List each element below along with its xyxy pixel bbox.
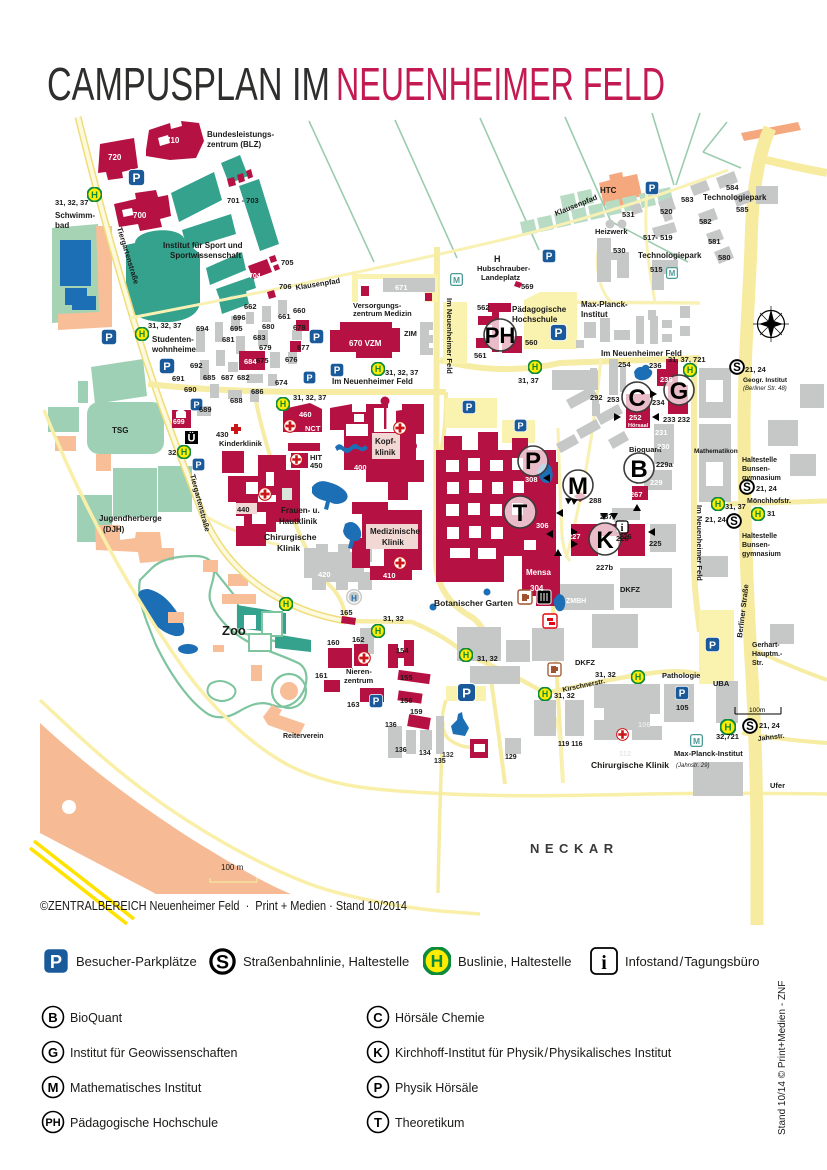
svg-text:Mathematisches Institut: Mathematisches Institut bbox=[70, 1081, 202, 1095]
svg-text:132: 132 bbox=[442, 752, 454, 759]
svg-text:PH: PH bbox=[485, 323, 516, 348]
svg-text:21, 24: 21, 24 bbox=[705, 515, 727, 524]
svg-text:Institut für Sport und: Institut für Sport und bbox=[163, 241, 243, 250]
svg-text:Botanischer Garten: Botanischer Garten bbox=[434, 598, 513, 608]
svg-text:695: 695 bbox=[230, 324, 243, 333]
svg-text:Gerhart-: Gerhart- bbox=[752, 642, 780, 649]
svg-text:21, 24: 21, 24 bbox=[756, 484, 778, 493]
svg-text:682: 682 bbox=[237, 373, 250, 382]
svg-text:T: T bbox=[513, 500, 528, 527]
svg-text:100 m: 100 m bbox=[221, 863, 244, 872]
svg-text:227: 227 bbox=[568, 532, 581, 541]
svg-text:710: 710 bbox=[166, 136, 180, 145]
svg-text:700: 700 bbox=[133, 211, 147, 220]
svg-text:688: 688 bbox=[230, 396, 243, 405]
svg-text:(Jahnstr. 29): (Jahnstr. 29) bbox=[676, 763, 709, 769]
svg-text:32: 32 bbox=[168, 448, 176, 457]
svg-text:400: 400 bbox=[354, 463, 367, 472]
svg-text:UBA: UBA bbox=[713, 679, 730, 688]
svg-text:450: 450 bbox=[310, 461, 323, 470]
svg-text:162: 162 bbox=[352, 635, 365, 644]
svg-text:T: T bbox=[374, 1115, 382, 1130]
svg-text:674: 674 bbox=[275, 378, 288, 387]
svg-text:Hauptm.-: Hauptm.- bbox=[752, 651, 783, 658]
svg-text:165: 165 bbox=[340, 608, 353, 617]
svg-text:Geogr. Institut: Geogr. Institut bbox=[743, 377, 788, 384]
svg-text:Hautklinik: Hautklinik bbox=[279, 517, 318, 526]
svg-text:690: 690 bbox=[184, 385, 197, 394]
svg-text:BioQuant: BioQuant bbox=[70, 1011, 123, 1025]
svg-text:440: 440 bbox=[237, 505, 250, 514]
svg-text:685: 685 bbox=[203, 373, 216, 382]
svg-text:230: 230 bbox=[657, 442, 670, 451]
svg-text:681: 681 bbox=[222, 335, 235, 344]
svg-text:Sportwissenschaft: Sportwissenschaft bbox=[170, 251, 241, 260]
svg-text:Pädagogische: Pädagogische bbox=[512, 305, 567, 314]
svg-text:227b: 227b bbox=[596, 563, 614, 572]
svg-text:zentrum: zentrum bbox=[344, 676, 374, 685]
svg-text:225: 225 bbox=[649, 539, 662, 548]
svg-text:705: 705 bbox=[281, 258, 294, 267]
svg-text:Im Neuenheimer Feld: Im Neuenheimer Feld bbox=[332, 377, 413, 386]
svg-text:Technologiepark: Technologiepark bbox=[703, 193, 767, 202]
svg-text:Heizwerk: Heizwerk bbox=[595, 227, 628, 236]
svg-text:Buslinie, Haltestelle: Buslinie, Haltestelle bbox=[458, 954, 571, 969]
svg-text:ZMBH: ZMBH bbox=[566, 598, 586, 605]
svg-text:694: 694 bbox=[196, 324, 209, 333]
svg-text:Medizinische: Medizinische bbox=[370, 527, 420, 536]
svg-text:676: 676 bbox=[285, 355, 298, 364]
svg-text:P: P bbox=[374, 1080, 383, 1095]
svg-text:Kirchhoff-Institut für Physik: Kirchhoff-Institut für Physik / Physikal… bbox=[395, 1046, 672, 1060]
svg-text:583: 583 bbox=[681, 195, 694, 204]
svg-text:Technologiepark: Technologiepark bbox=[638, 251, 702, 260]
svg-text:Max-Planck-Institut: Max-Planck-Institut bbox=[674, 749, 743, 758]
svg-text:i: i bbox=[601, 952, 607, 974]
svg-text:wohnheime: wohnheime bbox=[151, 345, 197, 354]
svg-text:287: 287 bbox=[600, 512, 613, 521]
svg-text:31, 32: 31, 32 bbox=[383, 614, 404, 623]
svg-text:100m: 100m bbox=[749, 707, 765, 714]
svg-text:252: 252 bbox=[629, 413, 642, 422]
svg-text:292: 292 bbox=[590, 393, 603, 402]
svg-text:233 232: 233 232 bbox=[663, 415, 690, 424]
svg-text:229a: 229a bbox=[656, 460, 674, 469]
svg-text:(Berliner Str. 48): (Berliner Str. 48) bbox=[743, 386, 787, 392]
svg-text:Bunsen-: Bunsen- bbox=[742, 466, 771, 473]
svg-text:Reiterverein: Reiterverein bbox=[283, 733, 323, 740]
svg-text:306: 306 bbox=[536, 521, 549, 530]
svg-text:31, 37: 31, 37 bbox=[518, 376, 539, 385]
svg-text:662: 662 bbox=[244, 302, 257, 311]
svg-text:560: 560 bbox=[525, 338, 538, 347]
svg-text:Mensa: Mensa bbox=[526, 568, 551, 577]
svg-text:31, 37, 721: 31, 37, 721 bbox=[668, 355, 706, 364]
svg-text:562: 562 bbox=[477, 303, 490, 312]
svg-text:720: 720 bbox=[108, 153, 122, 162]
svg-text:32,721: 32,721 bbox=[716, 732, 739, 741]
svg-text:DKFZ: DKFZ bbox=[620, 585, 640, 594]
svg-text:231: 231 bbox=[655, 428, 668, 437]
svg-text:©ZENTRALBEREICH Neuenheimer Fe: ©ZENTRALBEREICH Neuenheimer Feld · Print… bbox=[40, 899, 407, 913]
svg-text:Im Neuenheimer Feld: Im Neuenheimer Feld bbox=[445, 298, 454, 374]
svg-text:TSG: TSG bbox=[112, 426, 128, 435]
svg-text:683: 683 bbox=[253, 333, 266, 342]
svg-text:31, 32, 37: 31, 32, 37 bbox=[148, 321, 181, 330]
svg-text:430: 430 bbox=[216, 430, 229, 439]
svg-text:675: 675 bbox=[256, 356, 269, 365]
svg-text:Institut für Geowissenschaften: Institut für Geowissenschaften bbox=[70, 1046, 237, 1060]
svg-text:ZIM: ZIM bbox=[404, 329, 417, 338]
svg-text:135: 135 bbox=[434, 758, 446, 765]
svg-text:254: 254 bbox=[618, 360, 631, 369]
svg-text:678: 678 bbox=[293, 323, 306, 332]
svg-text:21, 24: 21, 24 bbox=[745, 365, 767, 374]
svg-text:Haltestelle: Haltestelle bbox=[742, 533, 777, 540]
svg-text:584: 584 bbox=[726, 183, 739, 192]
svg-text:31, 32, 37: 31, 32, 37 bbox=[55, 198, 88, 207]
svg-text:K: K bbox=[373, 1045, 383, 1060]
svg-text:161: 161 bbox=[315, 671, 328, 680]
svg-text:105: 105 bbox=[676, 703, 689, 712]
svg-text:Straßenbahnlinie, Haltestelle: Straßenbahnlinie, Haltestelle bbox=[243, 954, 409, 969]
svg-text:Im Neuenheimer Feld: Im Neuenheimer Feld bbox=[695, 505, 704, 581]
svg-text:Str.: Str. bbox=[752, 660, 763, 667]
svg-text:234: 234 bbox=[652, 398, 665, 407]
svg-text:691: 691 bbox=[172, 374, 185, 383]
svg-text:531: 531 bbox=[622, 210, 635, 219]
svg-text:155: 155 bbox=[400, 673, 413, 682]
svg-text:410: 410 bbox=[383, 571, 396, 580]
svg-text:Chirurgische Klinik: Chirurgische Klinik bbox=[591, 760, 669, 770]
svg-text:Chirurgische: Chirurgische bbox=[264, 532, 317, 542]
svg-text:Kopf-: Kopf- bbox=[375, 437, 396, 446]
svg-text:580: 580 bbox=[718, 253, 731, 262]
svg-text:Institut: Institut bbox=[581, 310, 608, 319]
svg-text:31, 37: 31, 37 bbox=[725, 502, 746, 511]
svg-text:31, 32, 37: 31, 32, 37 bbox=[293, 393, 326, 402]
svg-text:226: 226 bbox=[619, 532, 632, 541]
svg-text:235: 235 bbox=[660, 375, 673, 384]
svg-text:Theoretikum: Theoretikum bbox=[395, 1116, 464, 1130]
svg-text:134: 134 bbox=[419, 750, 431, 757]
svg-text:Schwimm-: Schwimm- bbox=[55, 211, 95, 220]
svg-text:P: P bbox=[525, 448, 541, 475]
svg-text:HTC: HTC bbox=[600, 186, 617, 195]
svg-text:B: B bbox=[48, 1010, 57, 1025]
svg-text:Pädagogische Hochschule: Pädagogische Hochschule bbox=[70, 1116, 218, 1130]
svg-text:686: 686 bbox=[251, 387, 264, 396]
svg-text:119 116: 119 116 bbox=[558, 741, 583, 748]
svg-text:517- 519: 517- 519 bbox=[643, 233, 673, 242]
svg-text:Haltestelle: Haltestelle bbox=[742, 457, 777, 464]
svg-text:680: 680 bbox=[262, 322, 275, 331]
svg-text:gymnasium: gymnasium bbox=[742, 551, 781, 558]
svg-text:136: 136 bbox=[385, 722, 397, 729]
svg-text:bad: bad bbox=[55, 221, 69, 230]
svg-text:267: 267 bbox=[630, 490, 643, 499]
svg-text:677: 677 bbox=[297, 343, 310, 352]
svg-text:Hubschrauber-: Hubschrauber- bbox=[477, 264, 531, 273]
svg-text:Max-Planck-: Max-Planck- bbox=[581, 300, 628, 309]
svg-text:679: 679 bbox=[259, 343, 272, 352]
svg-text:C: C bbox=[628, 385, 645, 412]
svg-text:585: 585 bbox=[736, 205, 749, 214]
svg-text:(DJH): (DJH) bbox=[103, 525, 125, 534]
svg-text:NECKAR: NECKAR bbox=[530, 841, 619, 856]
svg-text:Studenten-: Studenten- bbox=[152, 335, 194, 344]
svg-text:B: B bbox=[630, 456, 647, 483]
svg-text:Hörsaal: Hörsaal bbox=[628, 423, 649, 429]
svg-text:DKFZ: DKFZ bbox=[575, 658, 595, 667]
svg-text:460: 460 bbox=[299, 410, 312, 419]
svg-text:Ü: Ü bbox=[188, 432, 196, 445]
svg-text:308: 308 bbox=[525, 475, 538, 484]
svg-text:Kinderklinik: Kinderklinik bbox=[219, 439, 263, 448]
svg-text:31, 32: 31, 32 bbox=[595, 670, 616, 679]
svg-text:288: 288 bbox=[589, 496, 602, 505]
svg-text:gymnasium: gymnasium bbox=[742, 475, 781, 482]
svg-text:671: 671 bbox=[395, 283, 408, 292]
svg-text:PH: PH bbox=[45, 1117, 60, 1129]
svg-text:569: 569 bbox=[521, 282, 534, 291]
svg-text:112: 112 bbox=[619, 749, 631, 758]
svg-text:K: K bbox=[596, 527, 614, 554]
svg-text:701 - 703: 701 - 703 bbox=[227, 196, 259, 205]
svg-text:129: 129 bbox=[505, 754, 517, 761]
svg-text:520: 520 bbox=[660, 207, 673, 216]
svg-text:Infostand / Tagungsbüro: Infostand / Tagungsbüro bbox=[625, 954, 759, 969]
svg-text:420: 420 bbox=[318, 570, 331, 579]
svg-text:515: 515 bbox=[650, 265, 663, 274]
svg-text:304: 304 bbox=[530, 584, 544, 593]
svg-text:684: 684 bbox=[244, 357, 257, 366]
svg-text:689: 689 bbox=[199, 405, 212, 414]
svg-text:160: 160 bbox=[327, 638, 340, 647]
svg-text:G: G bbox=[48, 1045, 58, 1060]
svg-text:Landeplatz: Landeplatz bbox=[481, 273, 520, 282]
svg-text:156: 156 bbox=[400, 696, 413, 705]
svg-text:530: 530 bbox=[613, 246, 626, 255]
svg-text:106: 106 bbox=[638, 720, 651, 729]
svg-text:Stand 10/14 © Print+Medien - Z: Stand 10/14 © Print+Medien - ZNF bbox=[777, 981, 788, 1135]
svg-text:Nieren-: Nieren- bbox=[346, 667, 372, 676]
svg-text:692: 692 bbox=[190, 361, 203, 370]
svg-text:Besucher-Parkplätze: Besucher-Parkplätze bbox=[76, 954, 197, 969]
svg-text:Physik Hörsäle: Physik Hörsäle bbox=[395, 1081, 478, 1095]
svg-text:CAMPUSPLAN IM: CAMPUSPLAN IM bbox=[47, 58, 330, 110]
svg-text:699: 699 bbox=[173, 419, 185, 426]
svg-text:154: 154 bbox=[396, 646, 409, 655]
svg-text:klinik: klinik bbox=[375, 448, 396, 457]
svg-text:236: 236 bbox=[649, 361, 662, 370]
svg-text:704: 704 bbox=[249, 273, 261, 280]
svg-text:H: H bbox=[494, 254, 501, 264]
svg-text:660: 660 bbox=[293, 306, 306, 315]
svg-text:670 VZM: 670 VZM bbox=[349, 339, 382, 348]
svg-text:Hochschule: Hochschule bbox=[512, 315, 558, 324]
svg-text:Mönchhofstr.: Mönchhofstr. bbox=[747, 498, 791, 505]
svg-text:163: 163 bbox=[347, 700, 360, 709]
svg-text:C: C bbox=[373, 1010, 383, 1025]
svg-text:Pathologie: Pathologie bbox=[662, 671, 700, 680]
svg-text:31: 31 bbox=[767, 509, 775, 518]
svg-text:Klinik: Klinik bbox=[382, 538, 404, 547]
svg-text:561: 561 bbox=[474, 351, 487, 360]
svg-text:687: 687 bbox=[221, 373, 234, 382]
svg-text:229: 229 bbox=[650, 478, 663, 487]
svg-text:Ufer: Ufer bbox=[770, 781, 785, 790]
svg-text:M: M bbox=[568, 473, 588, 500]
svg-text:zentrum Medizin: zentrum Medizin bbox=[353, 309, 412, 318]
svg-text:NEUENHEIMER FELD: NEUENHEIMER FELD bbox=[336, 58, 665, 110]
svg-text:136: 136 bbox=[395, 747, 407, 754]
svg-text:Jugendherberge: Jugendherberge bbox=[99, 514, 162, 523]
svg-text:21, 24: 21, 24 bbox=[759, 721, 781, 730]
svg-text:253: 253 bbox=[607, 395, 620, 404]
svg-text:706: 706 bbox=[279, 282, 292, 291]
svg-text:582: 582 bbox=[699, 217, 712, 226]
svg-text:581: 581 bbox=[708, 237, 721, 246]
svg-text:31, 32, 37: 31, 32, 37 bbox=[385, 368, 418, 377]
svg-text:Klinik: Klinik bbox=[277, 543, 300, 553]
svg-text:Bunsen-: Bunsen- bbox=[742, 542, 771, 549]
svg-text:Hörsäle Chemie: Hörsäle Chemie bbox=[395, 1011, 485, 1025]
svg-text:zentrum (BLZ): zentrum (BLZ) bbox=[207, 140, 262, 149]
svg-text:H: H bbox=[351, 594, 357, 603]
svg-text:Zoo: Zoo bbox=[222, 623, 246, 638]
svg-text:NCT: NCT bbox=[305, 424, 321, 433]
svg-text:Mathematikon: Mathematikon bbox=[694, 448, 738, 455]
svg-text:31, 32: 31, 32 bbox=[477, 654, 498, 663]
svg-text:159: 159 bbox=[410, 707, 423, 716]
svg-text:M: M bbox=[48, 1080, 59, 1095]
svg-text:Frauen- u.: Frauen- u. bbox=[281, 506, 320, 515]
svg-text:696: 696 bbox=[233, 313, 246, 322]
svg-text:661: 661 bbox=[278, 312, 291, 321]
svg-text:Bundesleistungs-: Bundesleistungs- bbox=[207, 130, 274, 139]
